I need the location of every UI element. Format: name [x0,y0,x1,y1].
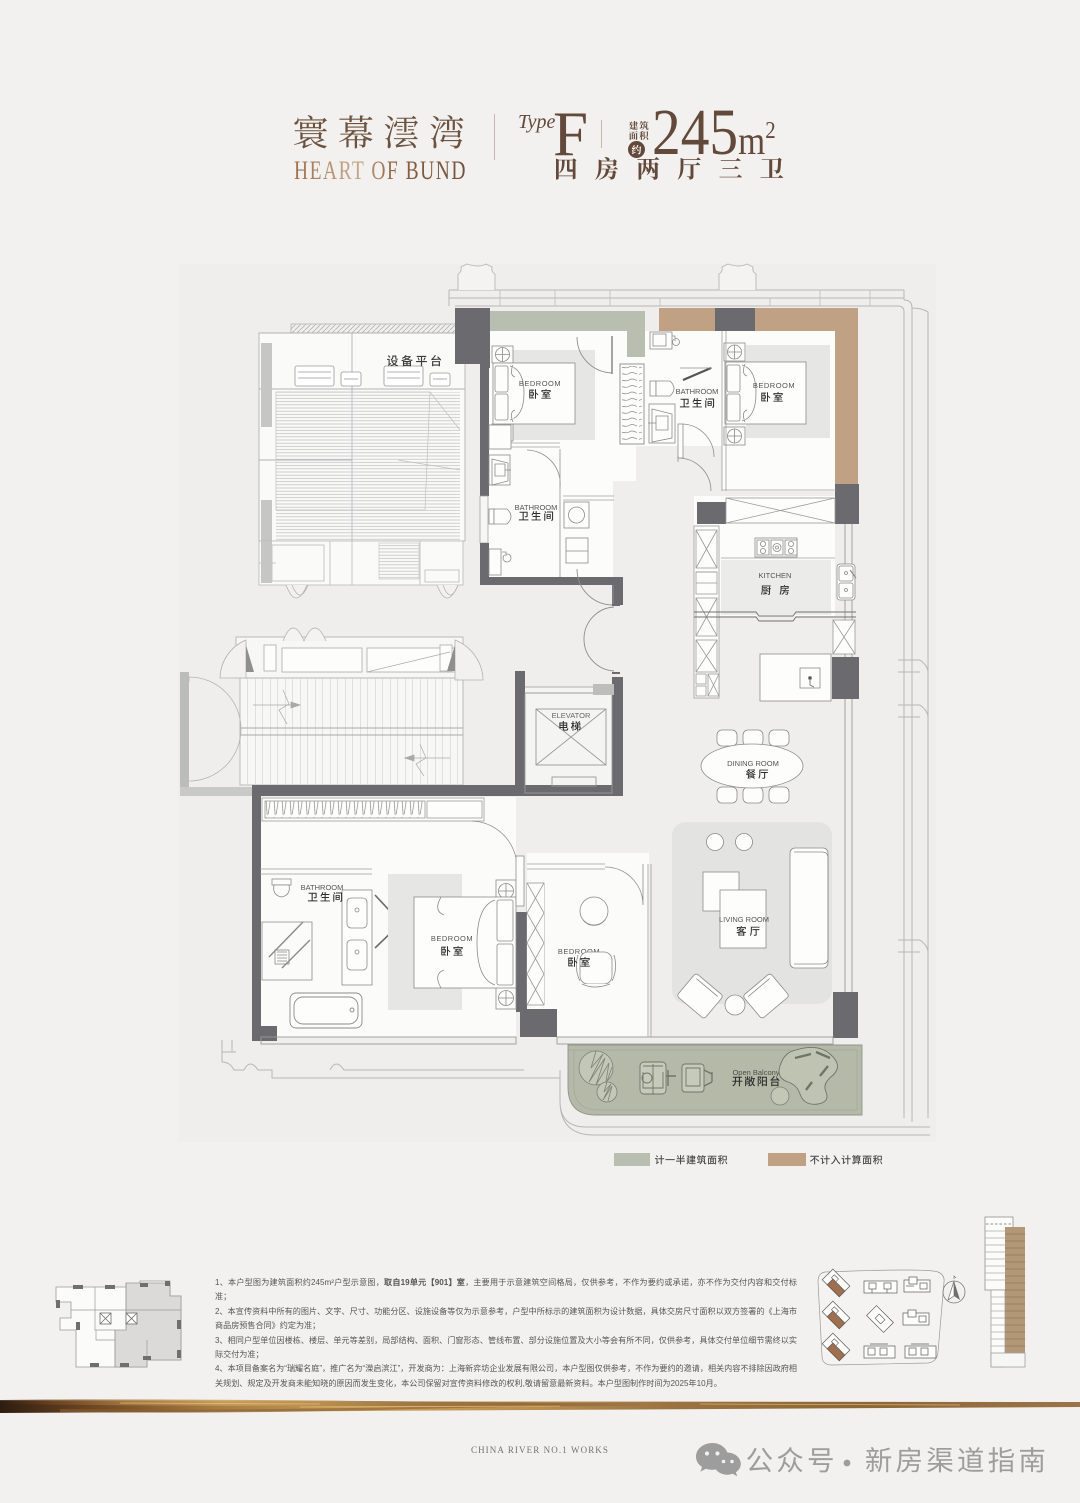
svg-text:BEDROOM: BEDROOM [519,379,561,388]
svg-text:KITCHEN: KITCHEN [759,571,792,580]
svg-text:BEDROOM: BEDROOM [753,381,795,390]
svg-text:DINING ROOM: DINING ROOM [727,759,779,768]
svg-text:BATHROOM: BATHROOM [515,503,558,512]
svg-text:BEDROOM: BEDROOM [431,934,473,943]
svg-text:BATHROOM: BATHROOM [676,387,719,396]
svg-text:BATHROOM: BATHROOM [301,883,344,892]
svg-text:LIVING ROOM: LIVING ROOM [719,915,769,924]
svg-text:ELEVATOR: ELEVATOR [552,711,591,720]
svg-text:Open Balcony: Open Balcony [732,1068,779,1077]
